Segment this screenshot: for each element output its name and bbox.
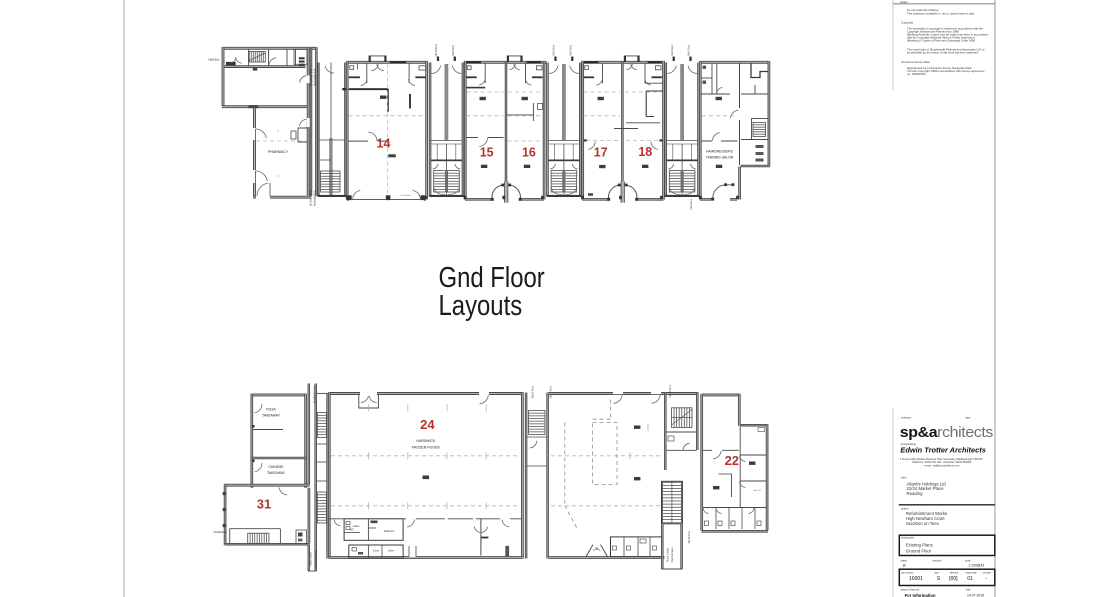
svg-text:This drawing is available in .: This drawing is available in .dxf or .dw… <box>907 11 975 15</box>
svg-text:24: 24 <box>420 417 435 432</box>
svg-text:31: 31 <box>257 496 271 511</box>
svg-text:18: 18 <box>638 145 652 159</box>
svg-text:CHINESE: CHINESE <box>268 465 284 469</box>
svg-text:Existing Plans: Existing Plans <box>906 542 933 547</box>
svg-text:No12a&b Ent.: No12a&b Ent. <box>313 68 317 86</box>
svg-text:FROZEN FOODS: FROZEN FOODS <box>412 446 440 450</box>
svg-text:14.07.2016: 14.07.2016 <box>967 594 984 597</box>
svg-text:14: 14 <box>377 137 391 151</box>
svg-text:project: project <box>901 507 909 510</box>
svg-text:WC: WC <box>350 529 354 531</box>
svg-text:Flat Access: Flat Access <box>670 547 674 562</box>
svg-text:element: element <box>950 571 959 574</box>
svg-text:Layouts: Layouts <box>439 289 523 322</box>
svg-text:Reading: Reading <box>907 491 924 496</box>
svg-text:job number: job number <box>900 571 913 574</box>
svg-text:e-mail: mail@sp-architects.co: e-mail: mail@sp-architects.com <box>924 465 960 468</box>
svg-text:no. 100000444: no. 100000444 <box>907 72 926 76</box>
svg-text:No19 Ent.: No19 Ent. <box>687 530 691 543</box>
svg-text:TAKEAWAY: TAKEAWAY <box>262 414 281 418</box>
svg-text:Edwin Trotter Architects: Edwin Trotter Architects <box>900 445 985 454</box>
svg-text:No9 Ent.: No9 Ent. <box>451 44 455 55</box>
svg-text:HAIRDRESSERS: HAIRDRESSERS <box>706 149 733 153</box>
svg-text:No1 Ent.: No1 Ent. <box>687 44 691 55</box>
svg-text:Ordnance Survey Data: Ordnance Survey Data <box>901 60 930 64</box>
svg-text:No8 Ent.: No8 Ent. <box>208 58 220 62</box>
svg-text:Lob 217: Lob 217 <box>753 490 762 492</box>
svg-text:No2 Ent.: No2 Ent. <box>670 44 674 55</box>
svg-text:date: date <box>966 588 971 591</box>
svg-text:01: 01 <box>967 576 973 582</box>
svg-text:HARDWICK: HARDWICK <box>416 439 436 443</box>
svg-text:No6 Ent.: No6 Ent. <box>552 44 556 55</box>
svg-text:@: @ <box>903 563 906 567</box>
svg-text:type: type <box>934 571 939 574</box>
svg-text:+0.45 lobby: +0.45 lobby <box>400 195 410 197</box>
svg-text:No10 Ent.: No10 Ent. <box>434 43 438 56</box>
svg-text:Ground Floor: Ground Floor <box>906 549 932 554</box>
svg-text:status of this print: status of this print <box>901 588 920 591</box>
svg-text:22: 22 <box>725 453 739 468</box>
svg-text:PIZZA: PIZZA <box>266 408 276 412</box>
svg-text:16: 16 <box>522 145 536 159</box>
svg-text:TAKEAWAY: TAKEAWAY <box>267 471 286 475</box>
svg-text:checked: checked <box>932 559 942 562</box>
svg-text:Staffroom: Staffroom <box>384 530 395 533</box>
svg-text:revision: revision <box>983 571 992 574</box>
svg-text:be identified as the author of: be identified as the author of this work… <box>907 50 979 54</box>
svg-text:1:100@A1: 1:100@A1 <box>968 563 984 567</box>
svg-text:No26 Ent.: No26 Ent. <box>549 385 553 398</box>
svg-text:Roof Level: Roof Level <box>666 548 670 562</box>
svg-text:date: date <box>966 417 971 420</box>
svg-text:revisions: revisions <box>901 417 912 420</box>
svg-text:scale: scale <box>965 559 971 562</box>
svg-text:15: 15 <box>480 145 494 159</box>
svg-text:PHARMACY: PHARMACY <box>268 150 289 154</box>
svg-text:Copyright: Copyright <box>901 21 913 25</box>
svg-text:sequential: sequential <box>965 571 976 574</box>
svg-text:17: 17 <box>594 146 608 160</box>
svg-text:Store: Store <box>388 550 394 553</box>
svg-text:TANNING SALON: TANNING SALON <box>706 156 734 160</box>
svg-text:Flat Entrances: Flat Entrances <box>313 549 317 568</box>
svg-text:Stockton on Tees: Stockton on Tees <box>906 521 939 526</box>
svg-text:(Marking of Copies of Plans an: (Marking of Copies of Plans and Drawings… <box>907 39 976 43</box>
svg-text:Notes: Notes <box>900 0 908 4</box>
svg-text:[00]: [00] <box>949 576 958 582</box>
svg-text:No30 Ent.: No30 Ent. <box>214 530 227 534</box>
svg-text:For Information: For Information <box>905 593 936 597</box>
svg-text:client: client <box>901 477 907 480</box>
svg-text:16001: 16001 <box>909 576 923 582</box>
svg-text:No23 Ent.: No23 Ent. <box>668 384 672 397</box>
svg-text:Gents: Gents <box>373 550 380 553</box>
svg-text:No28&29 Ent.: No28&29 Ent. <box>312 385 316 403</box>
svg-text:drawn: drawn <box>901 559 908 562</box>
svg-text:No5a&b Ent.: No5a&b Ent. <box>313 190 317 207</box>
svg-text:Mez Level: Mez Level <box>309 552 313 566</box>
svg-text:drawing title: drawing title <box>901 536 914 539</box>
svg-text:No5 Ent.: No5 Ent. <box>568 44 572 55</box>
svg-text:sp&architects: sp&architects <box>900 425 994 441</box>
svg-text:No3 Ent.: No3 Ent. <box>689 198 693 209</box>
svg-text:No27 Ent.: No27 Ent. <box>531 385 535 398</box>
svg-text:Ladies: Ladies <box>353 526 361 528</box>
